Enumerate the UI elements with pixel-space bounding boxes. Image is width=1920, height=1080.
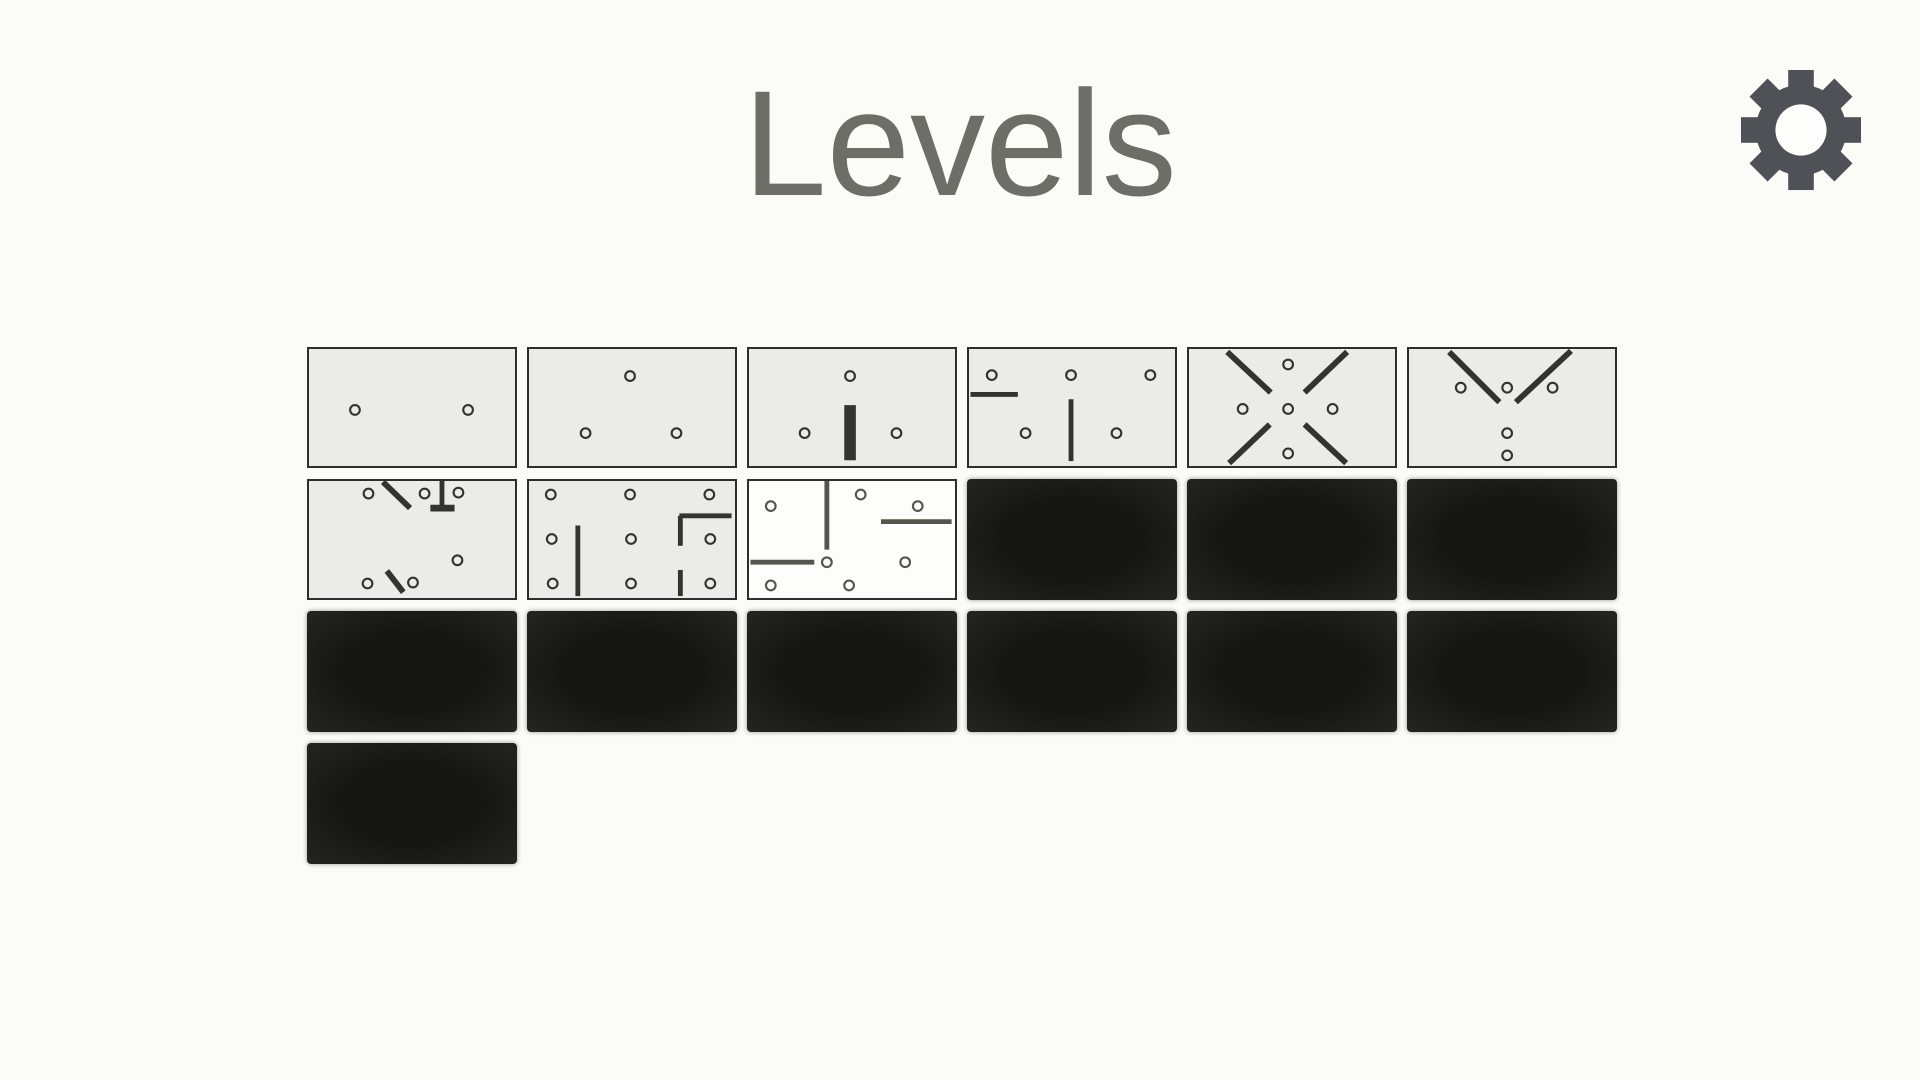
level-tile-12[interactable] [1407,479,1617,600]
level-8-preview [529,481,735,598]
level-1-preview [309,349,515,466]
level-tile-3[interactable] [747,347,957,468]
level-tile-2[interactable] [527,347,737,468]
level-tile-13[interactable] [307,611,517,732]
page-title: Levels [0,68,1920,218]
level-tile-10[interactable] [967,479,1177,600]
level-7-preview [309,481,515,598]
level-tile-11[interactable] [1187,479,1397,600]
level-tile-19[interactable] [307,743,517,864]
level-tile-16[interactable] [967,611,1177,732]
level-tile-17[interactable] [1187,611,1397,732]
level-tile-8[interactable] [527,479,737,600]
level-9-preview [749,481,955,598]
level-2-preview [529,349,735,466]
level-tile-5[interactable] [1187,347,1397,468]
level-5-preview [1189,349,1395,466]
level-tile-6[interactable] [1407,347,1617,468]
level-4-preview [969,349,1175,466]
levels-grid [307,347,1617,864]
level-tile-18[interactable] [1407,611,1617,732]
level-6-preview [1409,349,1615,466]
level-tile-4[interactable] [967,347,1177,468]
level-tile-1[interactable] [307,347,517,468]
level-tile-9[interactable] [747,479,957,600]
level-tile-7[interactable] [307,479,517,600]
settings-button[interactable] [1740,69,1862,191]
level-3-preview [749,349,955,466]
level-tile-14[interactable] [527,611,737,732]
gear-icon [1740,69,1862,191]
level-tile-15[interactable] [747,611,957,732]
